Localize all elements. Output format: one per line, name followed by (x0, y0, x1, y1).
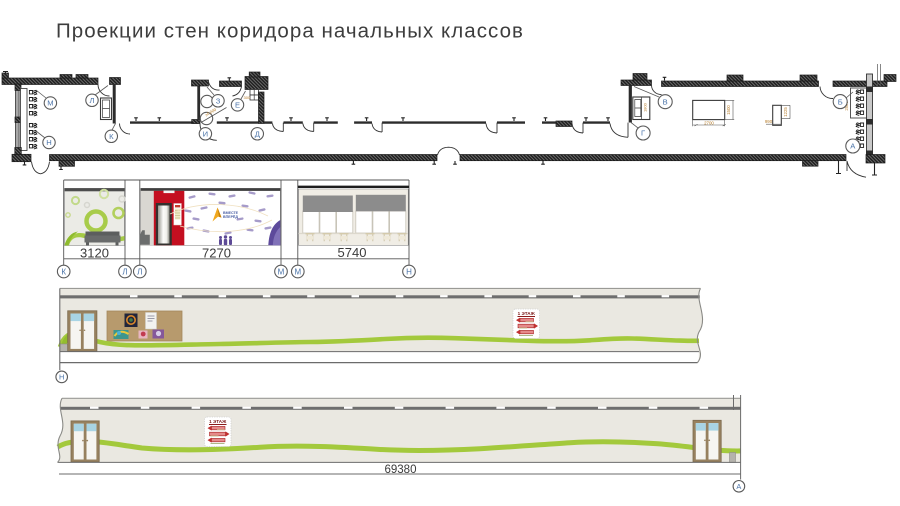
svg-text:ВПЕРЁД: ВПЕРЁД (223, 215, 238, 219)
svg-text:К: К (61, 267, 66, 276)
svg-text:990: 990 (765, 119, 773, 124)
svg-text:1500: 1500 (726, 105, 731, 115)
svg-text:Г: Г (641, 129, 645, 138)
svg-text:К: К (109, 132, 114, 141)
svg-text:7270: 7270 (202, 246, 231, 261)
svg-text:300: 300 (244, 95, 251, 100)
svg-text:Д: Д (255, 130, 260, 139)
svg-text:2700: 2700 (704, 121, 714, 126)
svg-text:Проекции стен коридора начальн: Проекции стен коридора начальных классов (56, 20, 524, 43)
svg-text:Н: Н (406, 267, 412, 276)
svg-text:Л: Л (137, 267, 142, 276)
svg-text:В: В (663, 97, 668, 106)
svg-text:З: З (216, 97, 221, 106)
svg-text:1225: 1225 (783, 107, 788, 117)
svg-text:Б: Б (838, 97, 843, 106)
svg-text:И: И (203, 130, 208, 139)
svg-text:М: М (47, 99, 53, 108)
svg-text:Н: Н (59, 373, 64, 382)
svg-text:М: М (294, 267, 301, 276)
svg-text:Л: Л (122, 267, 127, 276)
svg-text:Е: Е (235, 101, 240, 110)
svg-text:Н: Н (46, 138, 51, 147)
svg-text:3120: 3120 (80, 246, 109, 261)
svg-text:1 ЭТАЖ: 1 ЭТАЖ (209, 419, 227, 424)
svg-text:69380: 69380 (385, 464, 417, 476)
svg-text:Л: Л (90, 96, 95, 105)
svg-text:5740: 5740 (338, 245, 367, 260)
svg-text:1 ЭТАЖ: 1 ЭТАЖ (518, 311, 536, 316)
svg-text:М: М (278, 267, 285, 276)
svg-text:1800: 1800 (643, 102, 648, 112)
svg-text:А: А (736, 482, 741, 491)
